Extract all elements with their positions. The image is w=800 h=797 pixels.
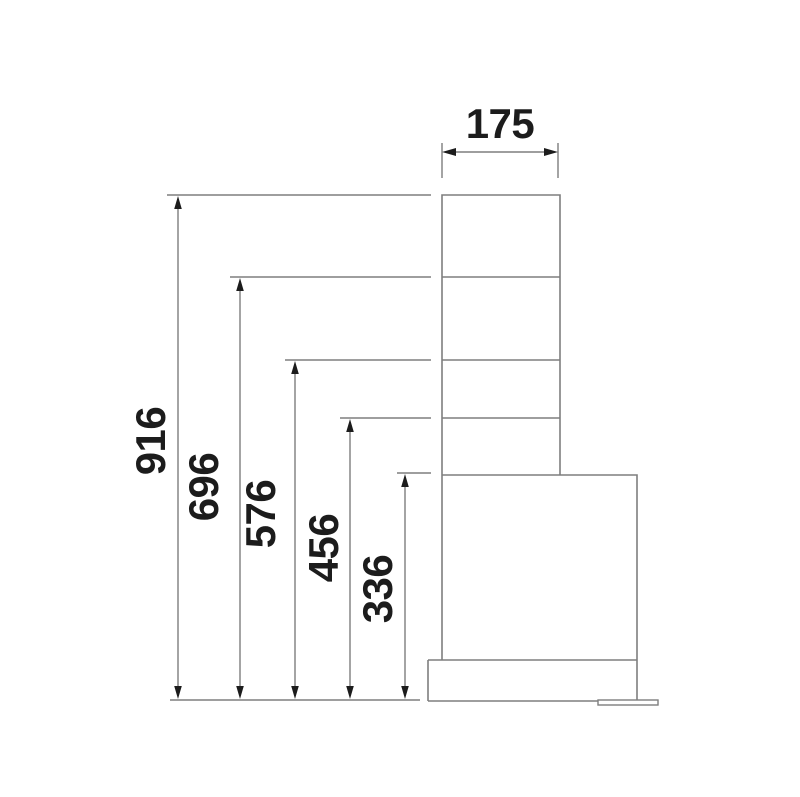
- height-dimension-336: 336: [354, 473, 431, 699]
- arrowhead-down-icon: [401, 686, 409, 699]
- arrowhead-up-icon: [174, 196, 182, 209]
- height-dimension-label: 696: [180, 453, 227, 522]
- height-dimension-label: 576: [237, 480, 284, 549]
- arrowhead-down-icon: [174, 686, 182, 699]
- arrowhead-down-icon: [236, 686, 244, 699]
- base-flange: [598, 700, 658, 705]
- arrowhead-down-icon: [346, 686, 354, 699]
- dimension-drawing-canvas: 175 916 696: [0, 0, 800, 797]
- arrowhead-up-icon: [401, 474, 409, 487]
- width-dimension: 175: [442, 100, 558, 178]
- product-outline: [428, 195, 658, 705]
- height-dimension-696: 696: [180, 277, 431, 699]
- height-dimension-label: 916: [127, 407, 174, 476]
- arrowhead-left-icon: [442, 148, 456, 156]
- height-dimension-label: 336: [354, 555, 401, 624]
- arrowhead-up-icon: [236, 278, 244, 291]
- dimensions: 175 916 696: [127, 100, 558, 700]
- arrowhead-down-icon: [291, 686, 299, 699]
- chimney-outline: [442, 195, 560, 475]
- cooker-hood-dimension-drawing: 175 916 696: [0, 0, 800, 797]
- width-dimension-label: 175: [466, 100, 535, 147]
- arrowhead-up-icon: [291, 361, 299, 374]
- hood-body-outline: [428, 475, 637, 702]
- arrowhead-right-icon: [544, 148, 558, 156]
- height-dimension-label: 456: [300, 514, 347, 583]
- arrowhead-up-icon: [346, 419, 354, 432]
